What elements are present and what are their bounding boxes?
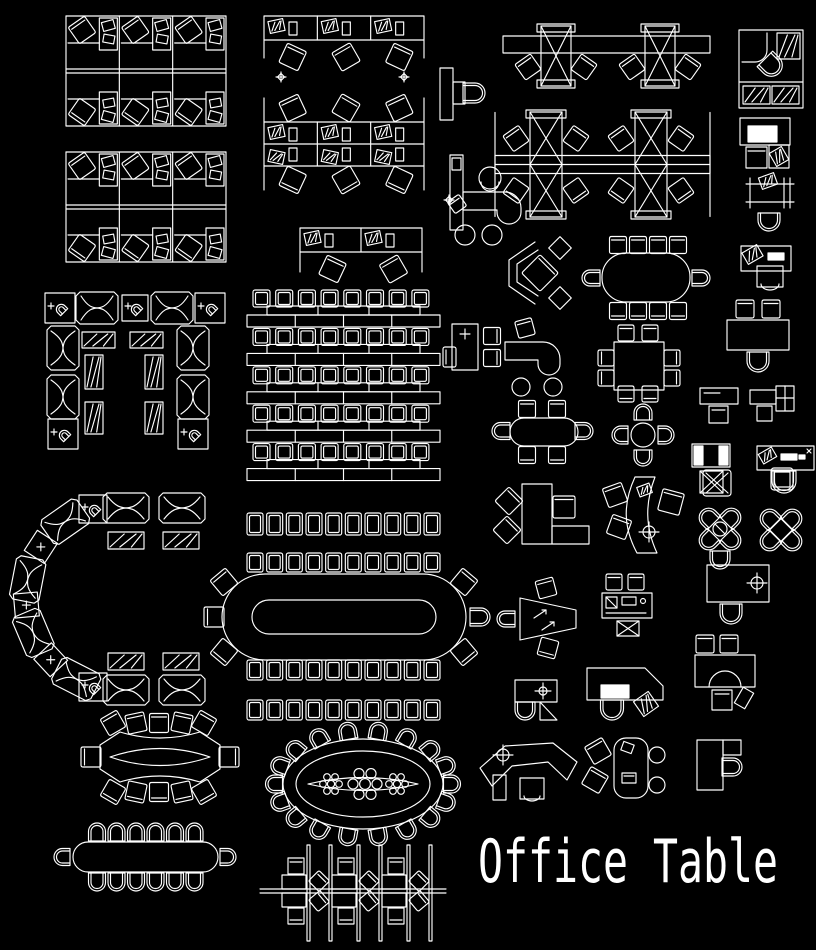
conference-rect-8 xyxy=(598,325,680,402)
x-workstation-cluster xyxy=(495,110,710,219)
cubicle-row-top-middle xyxy=(264,16,424,71)
round-table-cross xyxy=(612,404,674,466)
stool-row-3 xyxy=(247,660,440,680)
sofa-u-group xyxy=(45,292,225,449)
l-desk-large xyxy=(493,484,589,544)
flower-table-1 xyxy=(695,504,744,569)
f-desk xyxy=(697,740,742,790)
stool-row-4 xyxy=(247,700,440,720)
cad-canvas: Office Table xyxy=(0,0,816,950)
panel-desk-chair xyxy=(440,68,485,120)
curved-desk xyxy=(602,477,684,553)
cabinet-with-chairs xyxy=(452,324,501,370)
conference-racetrack-large xyxy=(204,568,490,666)
x-workstation-row xyxy=(503,24,710,88)
chair-x-small xyxy=(703,470,731,496)
stool-row-1 xyxy=(247,513,440,535)
l-counter-stools xyxy=(447,155,521,245)
classroom-rows xyxy=(247,290,440,481)
furniture-blocks-layer xyxy=(9,16,814,941)
drafting-table xyxy=(746,173,794,231)
executive-office xyxy=(739,30,803,108)
drawing-viewport: Office Table xyxy=(0,0,816,950)
stool-row-2 xyxy=(247,553,440,572)
exec-desk-crosshair xyxy=(707,565,769,624)
corner-diamond-desk xyxy=(509,237,571,310)
j-desk-stools xyxy=(505,318,562,396)
sparkle-right xyxy=(399,72,409,82)
classroom-stray-chair xyxy=(443,347,456,367)
oval-banquet-table xyxy=(266,721,461,847)
corner-desk-cross xyxy=(750,386,794,421)
trapezoid-table xyxy=(497,577,576,659)
desk-monitor xyxy=(740,118,790,168)
corner-workstation xyxy=(587,668,663,720)
desk-with-items xyxy=(741,245,791,290)
screen-desk xyxy=(757,446,814,493)
u-desk-group xyxy=(695,635,755,710)
cubicle-cluster-top-left-2 xyxy=(66,152,226,262)
conference-racetrack-10 xyxy=(582,237,710,320)
spine-workstations xyxy=(260,845,446,941)
sparkle-left xyxy=(276,72,286,82)
cubicle-row-small xyxy=(300,228,422,283)
sofa-c-group xyxy=(9,493,205,705)
drawing-title: Office Table xyxy=(478,827,778,897)
cubicle-cluster-top-left-1 xyxy=(66,16,226,126)
capsule-conference-6 xyxy=(492,401,593,464)
capsule-table-long xyxy=(54,823,236,891)
panel-side-desk xyxy=(692,444,730,493)
small-desk-chair xyxy=(700,388,738,423)
reception-desk xyxy=(480,743,577,801)
small-l-desk xyxy=(515,680,557,720)
rounded-desk xyxy=(581,737,665,798)
copier-station xyxy=(602,574,652,636)
desk-two-chairs xyxy=(727,300,789,372)
boat-conference-table xyxy=(81,710,239,805)
flower-table-2 xyxy=(756,505,805,554)
cubicle-cluster-middle xyxy=(264,94,424,195)
